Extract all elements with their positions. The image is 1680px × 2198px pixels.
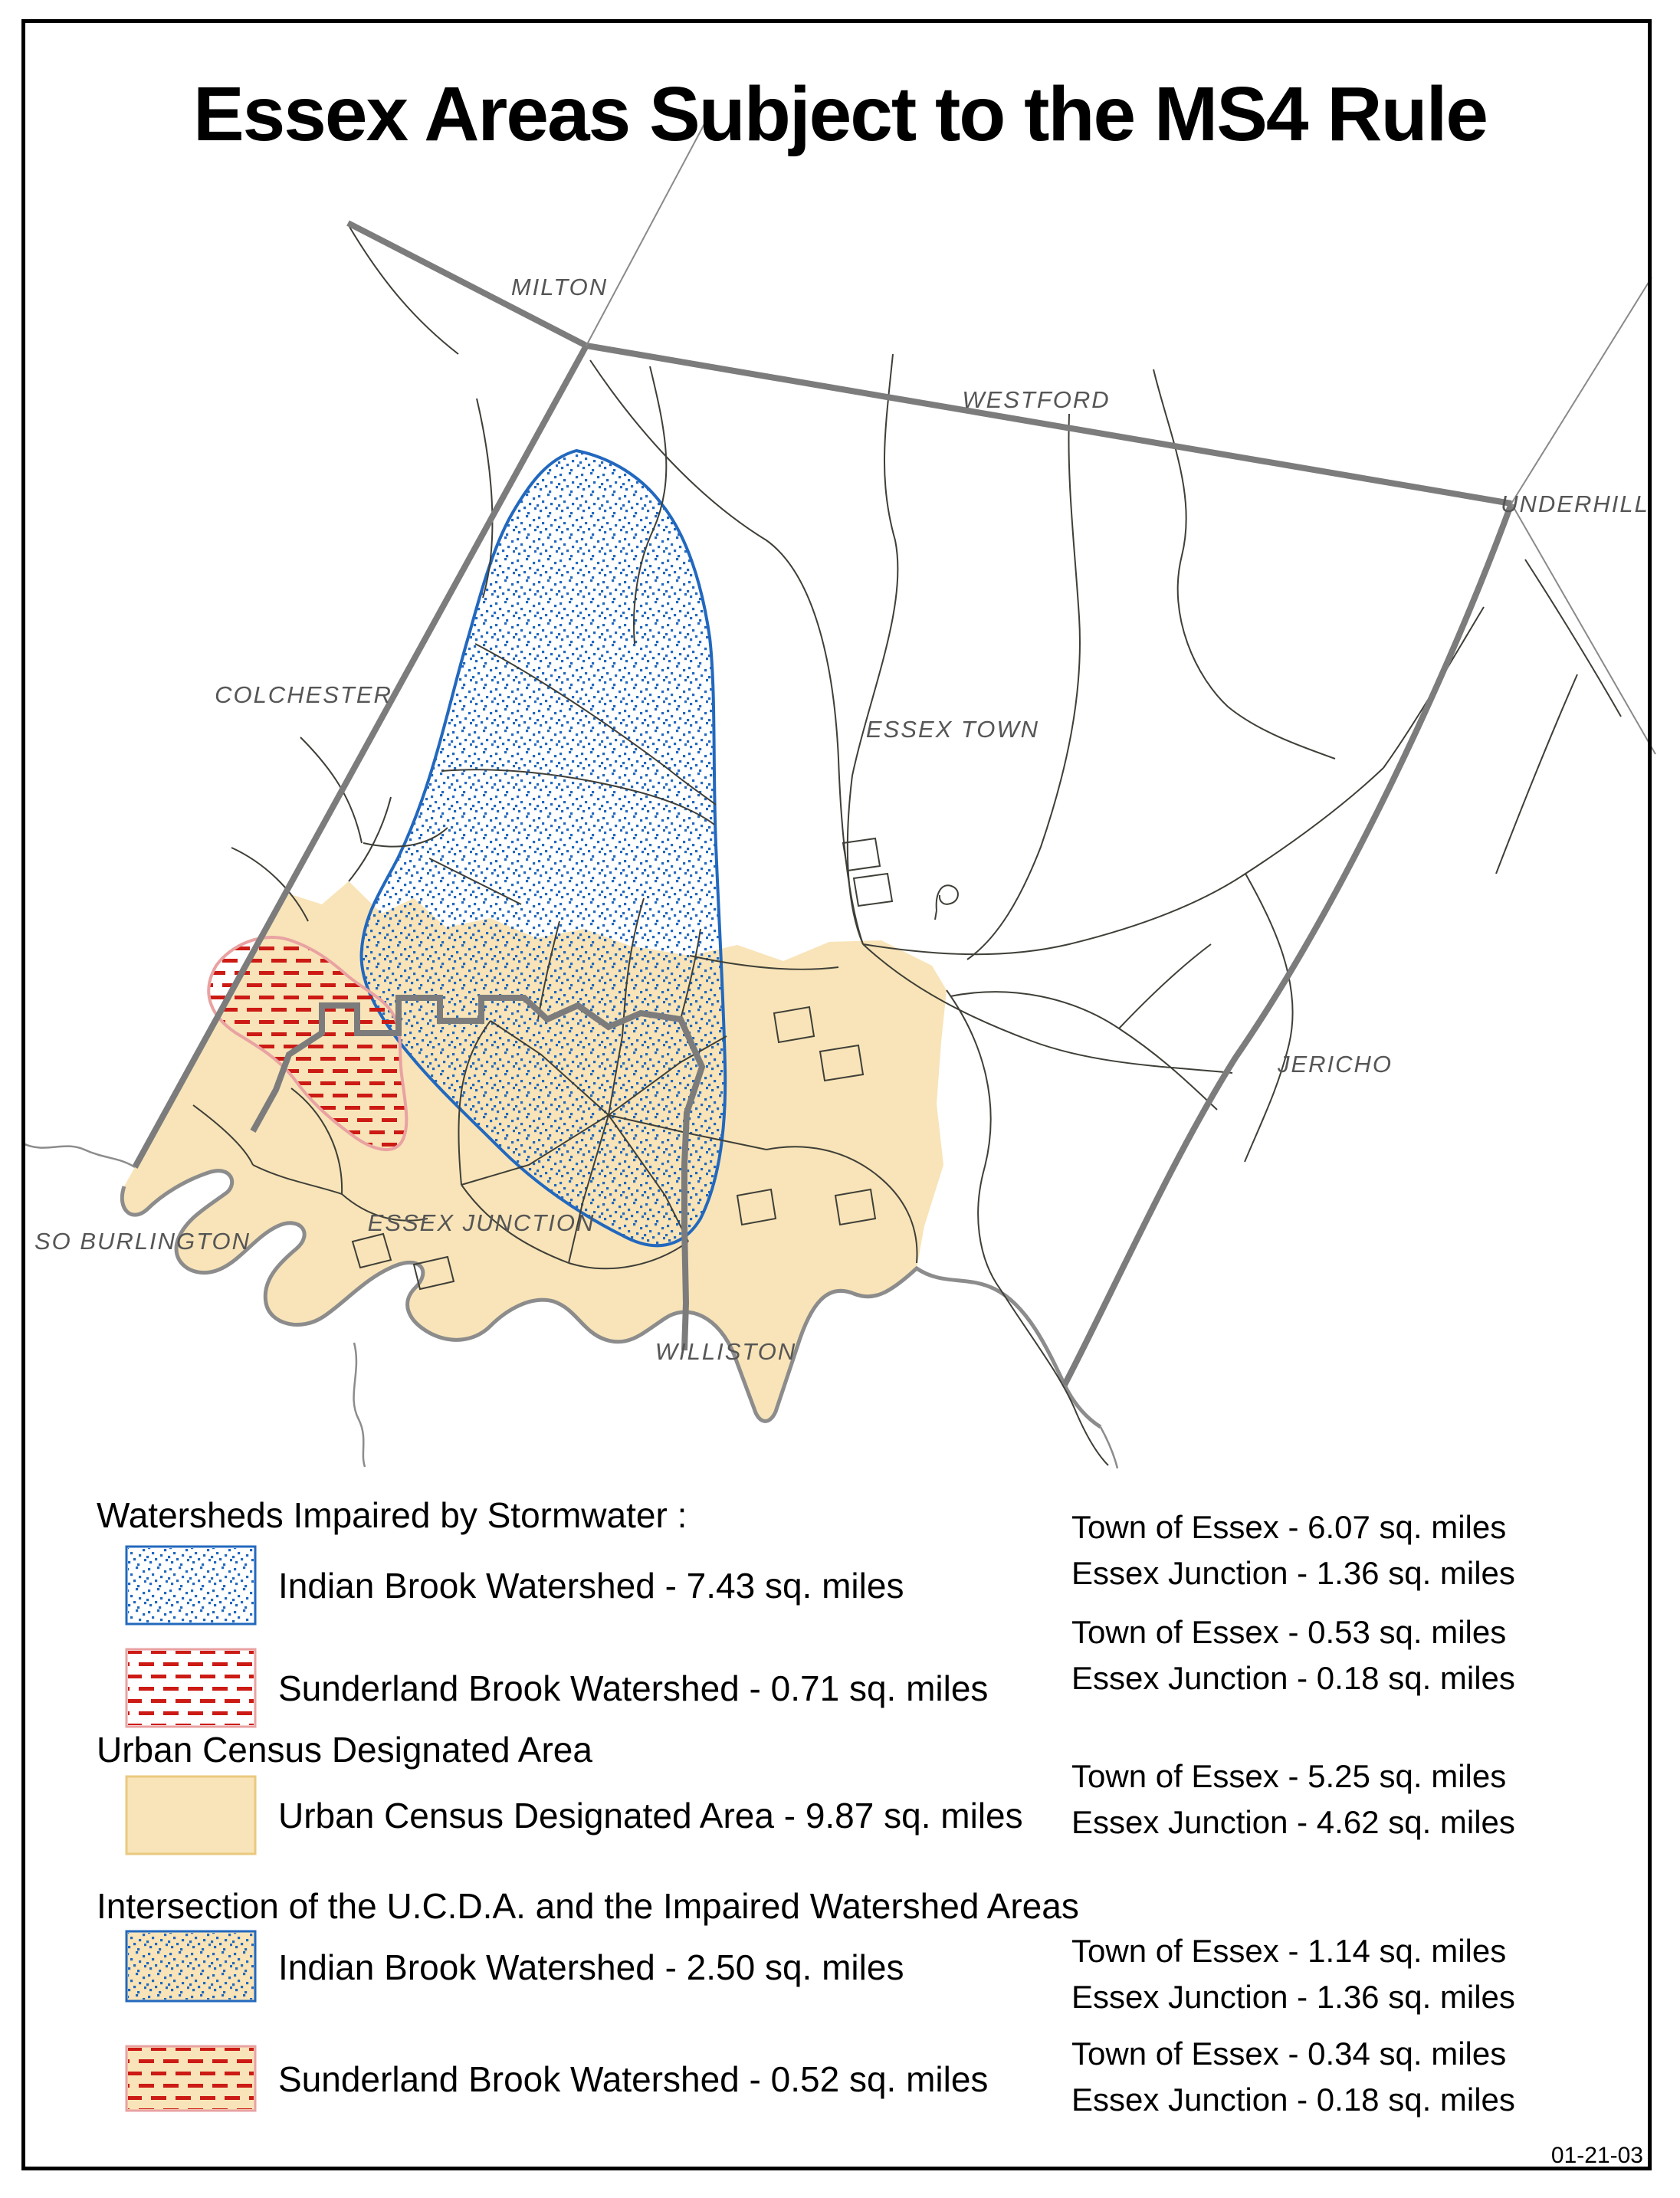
legend-heading-ucda: Urban Census Designated Area xyxy=(97,1729,592,1770)
stat-sunderland-town: Town of Essex - 0.53 sq. miles xyxy=(1071,1614,1506,1651)
page-title: Essex Areas Subject to the MS4 Rule xyxy=(0,71,1680,159)
stat-ucda-sunderland-town: Town of Essex - 0.34 sq. miles xyxy=(1071,2036,1506,2072)
label-milton: MILTON xyxy=(511,274,608,300)
legend-label-ucda-indian-brook: Indian Brook Watershed - 2.50 sq. miles xyxy=(278,1947,904,1988)
legend-swatch-sunderland-brook xyxy=(125,1648,257,1728)
stat-ucda-indian-town: Town of Essex - 1.14 sq. miles xyxy=(1071,1933,1506,1970)
label-underhill: UNDERHILL xyxy=(1501,490,1649,517)
legend-swatch-ucda-sunderland-brook xyxy=(125,2045,257,2112)
essex-ms4-map: MILTON WESTFORD UNDERHILL COLCHESTER ESS… xyxy=(0,0,1680,2198)
label-so-burlington: SO BURLINGTON xyxy=(34,1228,251,1255)
stat-ucda-junction: Essex Junction - 4.62 sq. miles xyxy=(1071,1804,1515,1841)
legend-swatch-indian-brook xyxy=(125,1545,257,1626)
legend-heading-watersheds: Watersheds Impaired by Stormwater : xyxy=(97,1494,687,1536)
legend-heading-intersection: Intersection of the U.C.D.A. and the Imp… xyxy=(97,1885,1079,1927)
label-westford: WESTFORD xyxy=(962,386,1110,413)
label-essex-town: ESSEX TOWN xyxy=(866,716,1039,743)
road-network xyxy=(193,227,1621,1465)
label-williston: WILLISTON xyxy=(655,1338,797,1365)
legend-label-ucda-sunderland-brook: Sunderland Brook Watershed - 0.52 sq. mi… xyxy=(278,2059,988,2100)
stat-ucda-indian-junction: Essex Junction - 1.36 sq. miles xyxy=(1071,1979,1515,2016)
legend-swatch-ucda-indian-brook xyxy=(125,1930,257,2003)
legend-label-indian-brook: Indian Brook Watershed - 7.43 sq. miles xyxy=(278,1565,904,1606)
stat-sunderland-junction: Essex Junction - 0.18 sq. miles xyxy=(1071,1660,1515,1697)
label-colchester: COLCHESTER xyxy=(215,681,392,708)
stat-ucda-sunderland-junction: Essex Junction - 0.18 sq. miles xyxy=(1071,2082,1515,2118)
legend-swatch-ucda xyxy=(125,1775,257,1855)
stat-indian-brook-junction: Essex Junction - 1.36 sq. miles xyxy=(1071,1555,1515,1592)
map-page: MILTON WESTFORD UNDERHILL COLCHESTER ESS… xyxy=(0,0,1680,2198)
legend-label-sunderland-brook: Sunderland Brook Watershed - 0.71 sq. mi… xyxy=(278,1668,988,1709)
stat-ucda-town: Town of Essex - 5.25 sq. miles xyxy=(1071,1758,1506,1795)
label-essex-junction: ESSEX JUNCTION xyxy=(368,1209,596,1236)
stat-indian-brook-town: Town of Essex - 6.07 sq. miles xyxy=(1071,1509,1506,1546)
label-jericho: JERICHO xyxy=(1277,1051,1393,1078)
legend-label-ucda: Urban Census Designated Area - 9.87 sq. … xyxy=(278,1795,1023,1836)
date-stamp: 01-21-03 xyxy=(1551,2143,1643,2169)
